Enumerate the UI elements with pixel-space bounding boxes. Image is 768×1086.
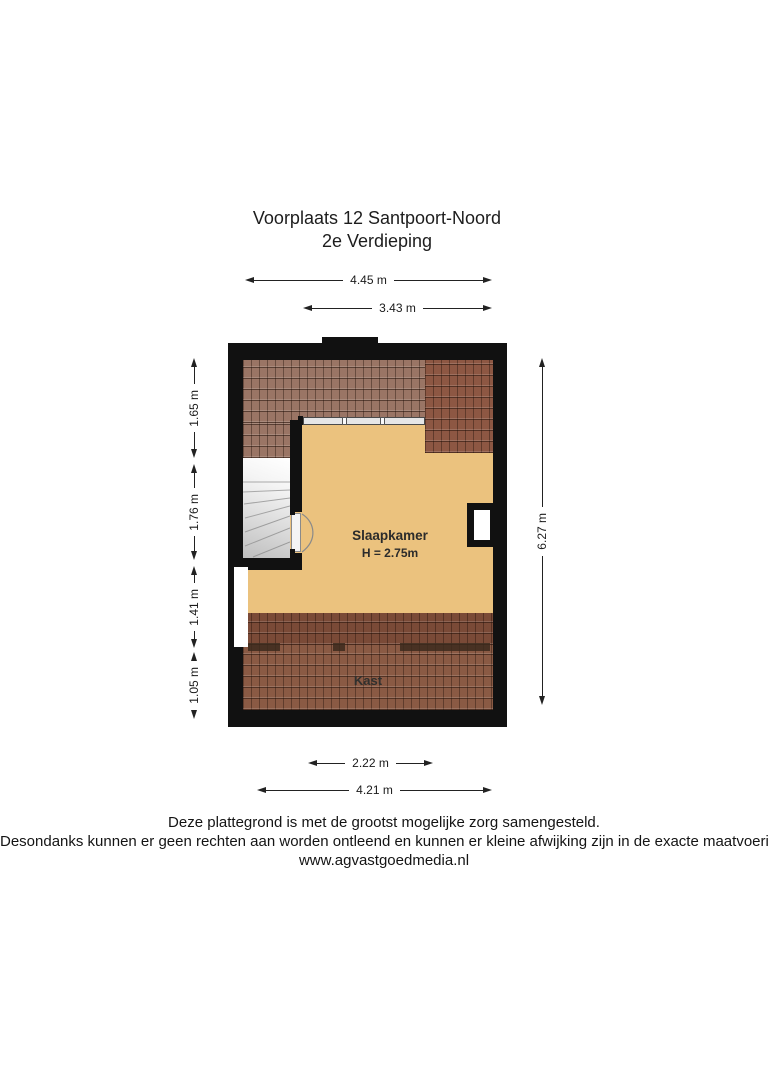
wall-stair-right (290, 420, 302, 512)
kast-divider-wall (248, 643, 280, 651)
kast-divider-wall (333, 643, 345, 651)
window-mullion (342, 417, 347, 425)
door-hinge (290, 549, 295, 554)
dimension-left-3: 1.41 m (187, 566, 201, 648)
top-wall-protrusion (322, 337, 378, 343)
roof-area-top (243, 360, 425, 423)
arrow-up-icon (191, 464, 197, 473)
dimension-left-4: 1.05 m (187, 652, 201, 704)
roof-area-top-right (425, 360, 493, 453)
arrow-right-icon (483, 305, 492, 311)
roof-area-left (243, 423, 290, 458)
stair-treads (243, 458, 290, 558)
disclaimer: Deze plattegrond is met de grootst mogel… (0, 813, 768, 870)
room-label-slaapkamer: Slaapkamer (320, 528, 460, 543)
arrow-up-icon (191, 652, 197, 661)
disclaimer-line-2: Desondanks kunnen er geen rechten aan wo… (0, 832, 768, 851)
dimension-top-outer: 4.45 m (245, 273, 492, 287)
dimension-bottom-outer: 4.21 m (257, 783, 492, 797)
left-wall-recess (234, 567, 248, 647)
dimension-left-2: 1.76 m (187, 464, 201, 560)
arrow-down-icon (191, 710, 197, 719)
page-subtitle: 2e Verdieping (0, 230, 754, 253)
roof-area-bottom-band (243, 613, 493, 645)
arrow-up-icon (191, 566, 197, 575)
door-hinge (290, 510, 295, 515)
arrow-down-icon (539, 696, 545, 705)
kast-divider-wall (400, 643, 490, 651)
chimney-shaft (474, 510, 490, 540)
arrow-up-icon (539, 358, 545, 367)
room-ceiling-height: H = 2.75m (320, 546, 460, 560)
disclaimer-line-1: Deze plattegrond is met de grootst mogel… (0, 813, 768, 832)
dimension-top-inner: 3.43 m (303, 301, 492, 315)
dimension-left-1: 1.65 m (187, 358, 201, 458)
dimension-right: 6.27 m (535, 358, 549, 705)
dimension-label: 1.65 m (187, 390, 201, 427)
dimension-label: 1.41 m (187, 589, 201, 626)
room-label-kast: Kast (298, 673, 438, 688)
wall-stair-bottom (243, 558, 302, 570)
dimension-label: 1.05 m (187, 667, 201, 704)
page-title: Voorplaats 12 Santpoort-Noord (0, 207, 754, 230)
staircase (243, 458, 290, 558)
dimension-label: 3.43 m (379, 301, 416, 315)
website-url: www.agvastgoedmedia.nl (0, 851, 768, 870)
arrow-down-icon (191, 449, 197, 458)
floor-plan: Slaapkamer H = 2.75m Kast (228, 343, 507, 727)
window-mullion (380, 417, 385, 425)
plan-title: Voorplaats 12 Santpoort-Noord 2e Verdiep… (0, 207, 754, 253)
arrow-right-icon (483, 277, 492, 283)
door (291, 513, 301, 552)
arrow-right-icon (424, 760, 433, 766)
dimension-label: 1.76 m (187, 494, 201, 531)
arrow-left-icon (245, 277, 254, 283)
dormer-window (303, 417, 425, 425)
arrow-up-icon (191, 358, 197, 367)
arrow-left-icon (257, 787, 266, 793)
dimension-label: 4.21 m (356, 783, 393, 797)
dimension-label: 6.27 m (535, 513, 549, 550)
arrow-left-icon (308, 760, 317, 766)
dimension-label: 2.22 m (352, 756, 389, 770)
dimension-label: 4.45 m (350, 273, 387, 287)
arrow-left-icon (303, 305, 312, 311)
arrow-down-icon (191, 639, 197, 648)
dimension-bottom-inner: 2.22 m (308, 756, 433, 770)
arrow-down-icon (191, 551, 197, 560)
arrow-right-icon (483, 787, 492, 793)
door-swing-arc (301, 511, 321, 555)
